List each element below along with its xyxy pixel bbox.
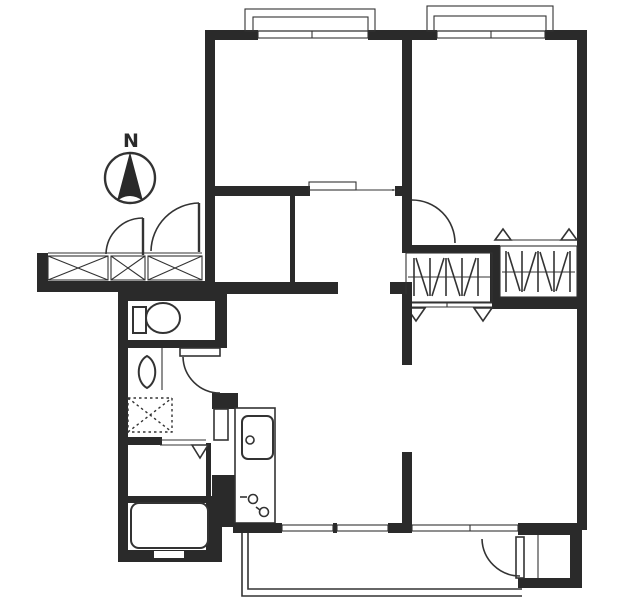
entrance-door-left [106, 218, 143, 255]
living-dining-divider [402, 294, 412, 533]
window-bedroom-right [427, 6, 553, 38]
futon-closet-icon-right [495, 229, 577, 297]
bathroom-folding-door-icon [192, 445, 208, 458]
north-compass-icon: N [105, 130, 155, 203]
bathtub-icon [131, 503, 208, 548]
futon-closet-icon-left [406, 253, 492, 321]
entrance-genkan [37, 203, 212, 292]
floor-plan-drawing: N [0, 0, 640, 610]
washbasin-icon [139, 356, 156, 388]
closets [402, 229, 587, 321]
entrance-step-icon [48, 256, 202, 280]
south-wall [233, 523, 518, 533]
window-bedroom-left [245, 9, 375, 38]
washroom-door [180, 348, 220, 393]
entrance-door-right [151, 203, 199, 252]
compass-north-label: N [123, 130, 139, 152]
kitchen [235, 408, 275, 523]
toilet-room [133, 303, 180, 333]
bathroom [131, 440, 208, 548]
balcony [242, 523, 582, 596]
bedrooms-divider-wall [402, 32, 412, 252]
toilet-icon [133, 303, 180, 333]
bedroom-right-door [412, 200, 455, 243]
washing-machine-pan-icon [128, 398, 172, 432]
washroom [128, 348, 220, 432]
balcony-storage-room [482, 523, 582, 588]
hall-walls [212, 186, 412, 294]
floor-plan-page: N [0, 0, 640, 610]
storage-door [482, 537, 524, 578]
balcony-railing-icon [242, 533, 522, 596]
hall-sliding-door [309, 182, 405, 190]
